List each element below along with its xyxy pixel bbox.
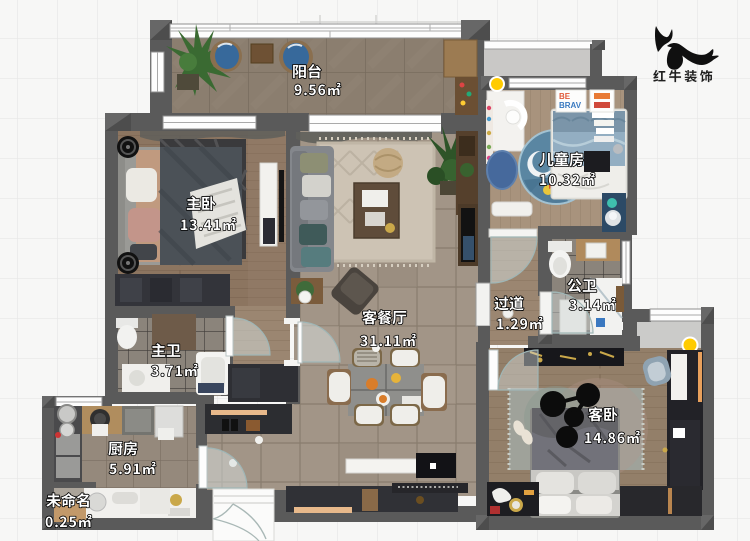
svg-text:BRAV: BRAV (559, 101, 582, 110)
svg-text:BE: BE (559, 92, 571, 101)
